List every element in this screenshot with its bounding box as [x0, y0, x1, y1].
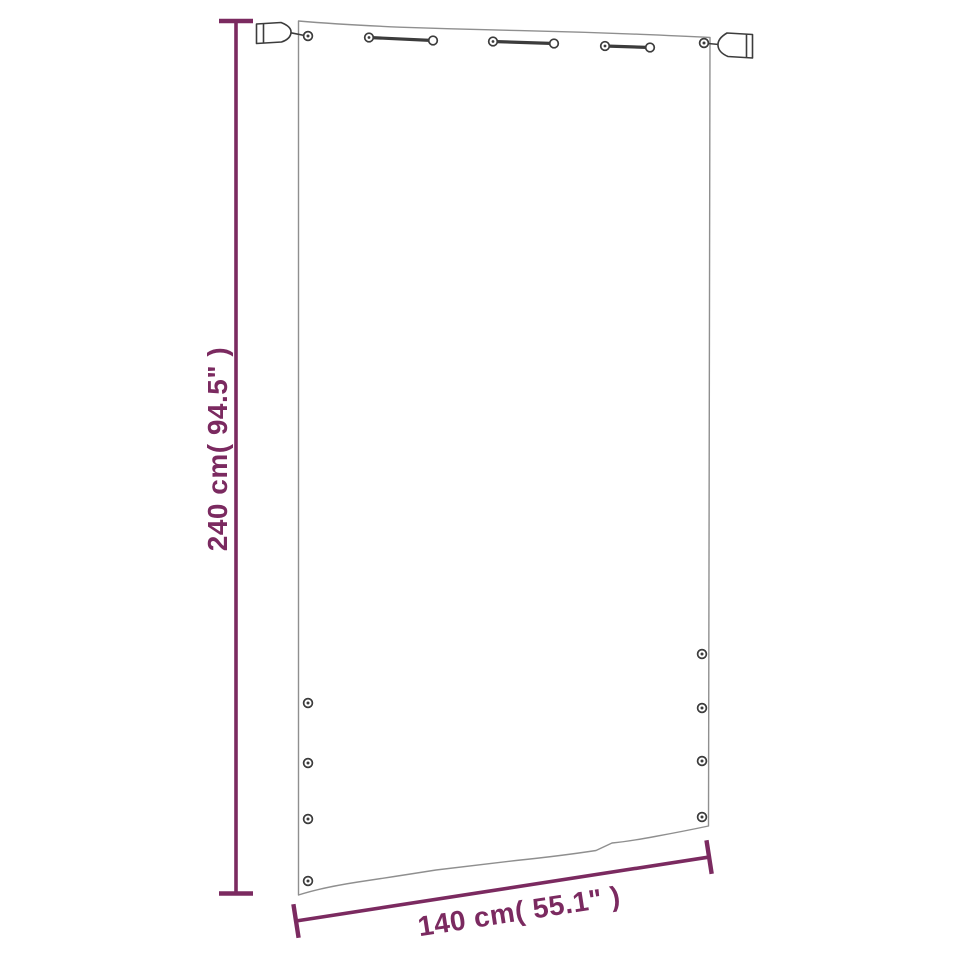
grommet: [304, 815, 313, 824]
grommet: [304, 759, 313, 768]
right-clip-body: [718, 33, 753, 58]
left-corner-ring: [304, 32, 313, 41]
grommet: [698, 704, 707, 713]
grommet: [304, 877, 313, 886]
height-label: 240 cm( 94.5" ): [202, 347, 233, 551]
left-clip-body: [257, 23, 292, 44]
left-end-clip: [257, 23, 305, 44]
right-corner-ring: [700, 39, 709, 48]
grommet: [698, 650, 707, 659]
product-dimension-diagram: 240 cm( 94.5" ) 140 cm( 55.1" ): [0, 0, 955, 955]
width-right-tick: [706, 840, 711, 874]
grommet: [698, 813, 707, 822]
height-dimension: 240 cm( 94.5" ): [202, 21, 253, 894]
right-end-clip: [708, 33, 753, 58]
diagram-canvas: 240 cm( 94.5" ) 140 cm( 55.1" ): [0, 0, 955, 955]
grommet: [698, 757, 707, 766]
screen-panel-outline: [299, 21, 711, 895]
width-label: 140 cm( 55.1" ): [416, 880, 623, 942]
grommet: [304, 699, 313, 708]
